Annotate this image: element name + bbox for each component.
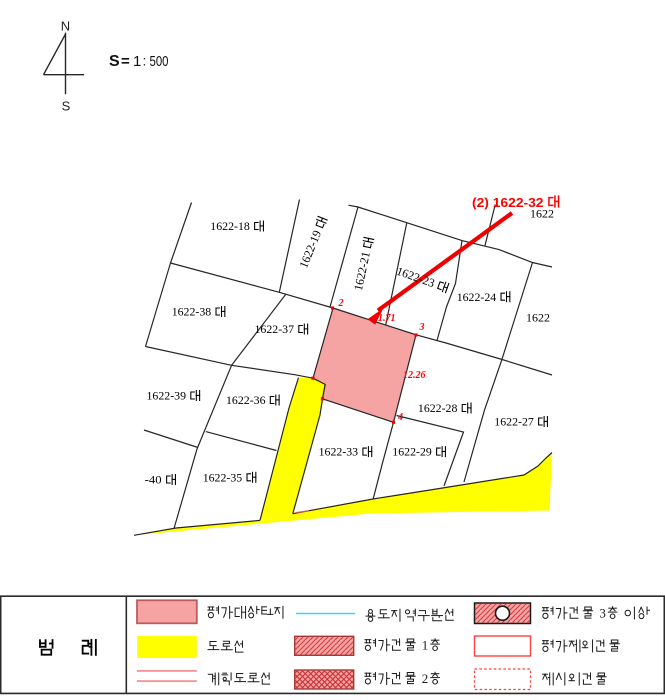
svg-text:3: 3: [419, 322, 425, 333]
svg-text:S: S: [109, 53, 120, 70]
svg-text:1622-36: 1622-36: [226, 393, 266, 407]
svg-text:21.71: 21.71: [372, 313, 396, 324]
svg-text:1622: 1622: [526, 311, 550, 325]
svg-text:3: 3: [599, 605, 606, 620]
svg-text:-40: -40: [145, 473, 162, 487]
svg-text:1622-28: 1622-28: [418, 401, 458, 415]
svg-text:1: 1: [133, 53, 141, 70]
svg-text:1622-18: 1622-18: [210, 219, 250, 233]
svg-text:1622-24: 1622-24: [457, 290, 497, 304]
svg-text:1622-33: 1622-33: [319, 445, 359, 459]
svg-text:2: 2: [422, 671, 429, 686]
svg-text:S: S: [62, 98, 71, 113]
svg-text:1622: 1622: [530, 207, 554, 221]
svg-text:4: 4: [397, 412, 403, 423]
svg-text:2: 2: [338, 298, 344, 309]
svg-text:N: N: [61, 18, 70, 33]
svg-text:=: =: [121, 53, 130, 70]
svg-text:1622-39: 1622-39: [147, 389, 187, 403]
svg-text::: :: [143, 53, 147, 69]
svg-text:1: 1: [422, 637, 429, 652]
svg-text:500: 500: [150, 53, 169, 70]
svg-text:1622-29: 1622-29: [392, 445, 432, 459]
svg-text:12.26: 12.26: [403, 370, 426, 381]
svg-text:1622-38: 1622-38: [172, 305, 212, 319]
svg-text:1622-27: 1622-27: [494, 415, 534, 429]
svg-text:1622-37: 1622-37: [255, 322, 295, 336]
svg-text:1622-35: 1622-35: [203, 470, 243, 484]
